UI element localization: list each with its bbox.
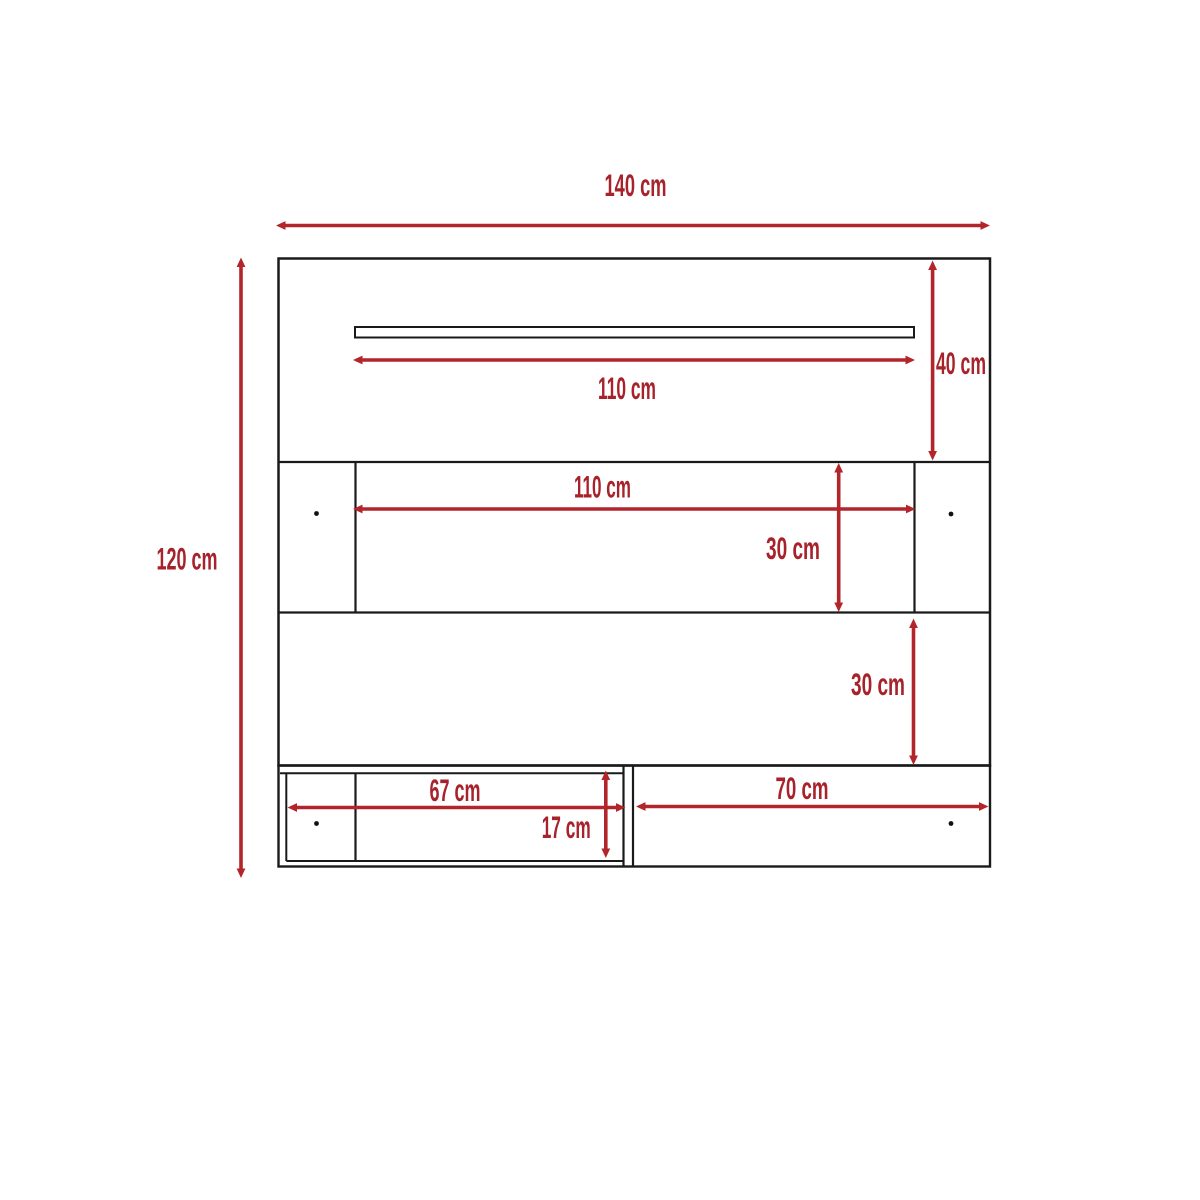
svg-text:40 cm: 40 cm [936,345,986,381]
svg-text:110 cm: 110 cm [598,370,656,406]
svg-text:140 cm: 140 cm [605,167,667,203]
svg-text:120 cm: 120 cm [157,541,218,577]
svg-text:30 cm: 30 cm [766,530,820,566]
svg-text:30 cm: 30 cm [851,666,905,702]
svg-text:70 cm: 70 cm [776,770,829,806]
svg-text:110 cm: 110 cm [574,469,631,505]
svg-text:67 cm: 67 cm [430,772,481,808]
svg-text:17 cm: 17 cm [542,809,591,845]
